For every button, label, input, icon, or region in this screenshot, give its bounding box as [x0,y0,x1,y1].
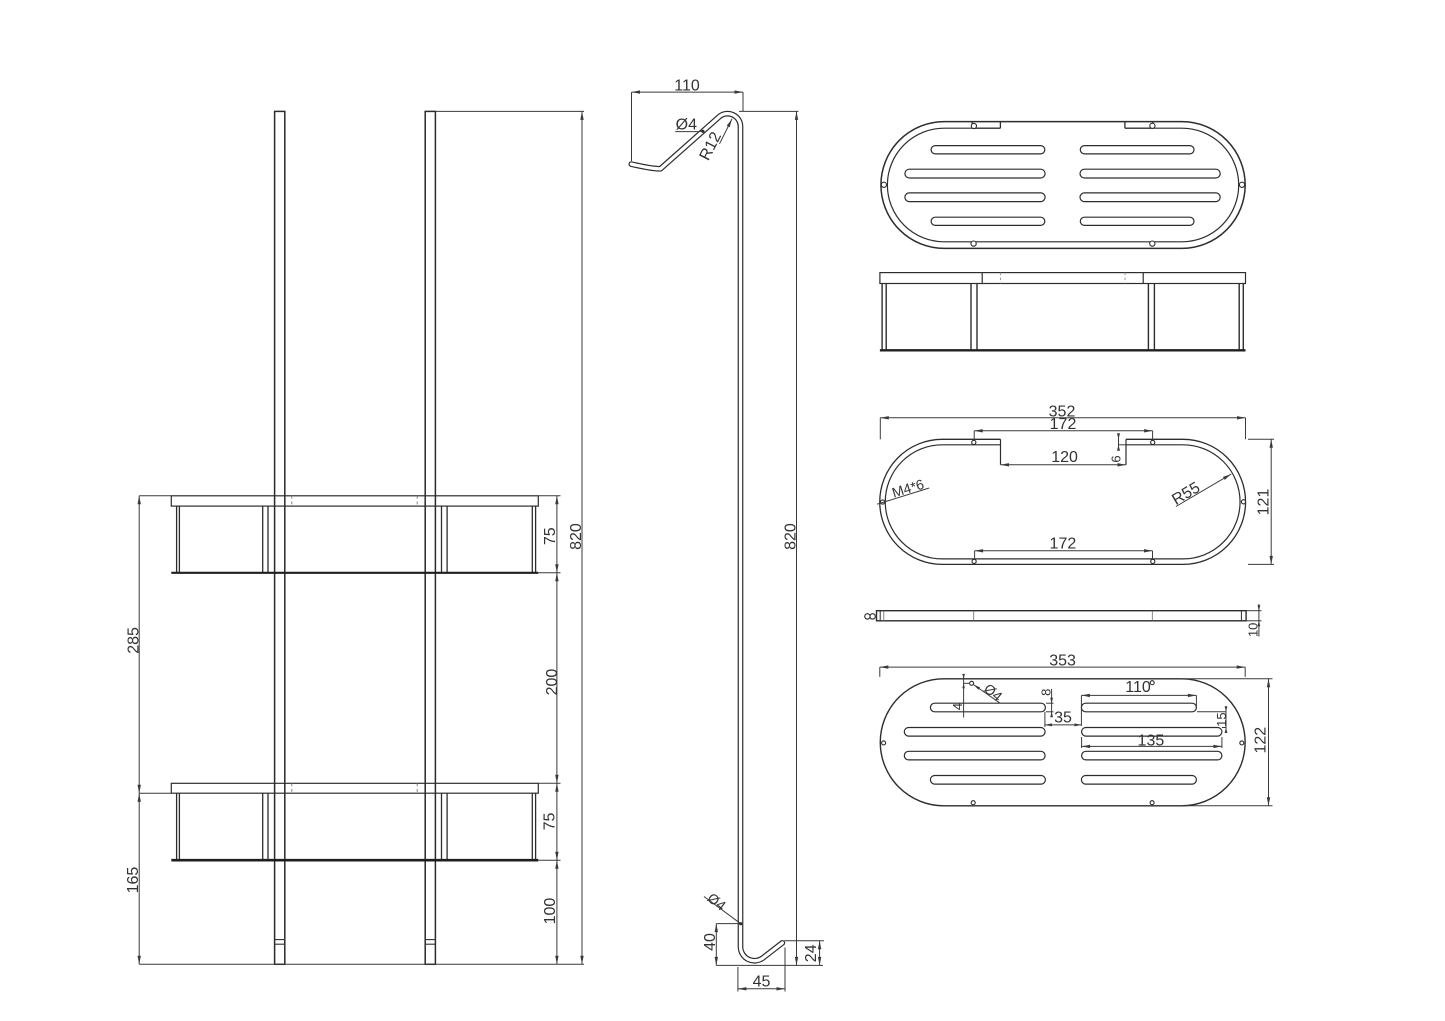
svg-text:40: 40 [702,933,719,951]
svg-text:110: 110 [1125,679,1151,696]
svg-text:353: 353 [1049,652,1076,669]
svg-text:4: 4 [950,703,965,710]
svg-text:121: 121 [1256,489,1273,516]
svg-text:45: 45 [753,974,771,991]
svg-text:820: 820 [783,523,800,550]
svg-text:820: 820 [568,523,585,550]
svg-text:135: 135 [1138,733,1165,750]
svg-text:75: 75 [542,527,559,545]
svg-text:8: 8 [1039,689,1054,696]
svg-text:6: 6 [1108,455,1123,462]
svg-text:24: 24 [803,944,820,962]
svg-text:120: 120 [1051,449,1078,466]
svg-text:35: 35 [1054,710,1072,727]
svg-text:172: 172 [1050,416,1077,433]
svg-text:10: 10 [1245,623,1260,637]
svg-text:75: 75 [542,813,559,831]
svg-text:200: 200 [544,669,561,696]
svg-text:100: 100 [542,898,559,925]
svg-text:110: 110 [674,78,700,95]
svg-text:122: 122 [1253,727,1270,754]
svg-text:15: 15 [1214,712,1229,726]
svg-text:Ø4: Ø4 [676,116,697,133]
svg-text:285: 285 [126,627,143,654]
svg-text:172: 172 [1050,536,1077,553]
svg-text:165: 165 [125,867,142,894]
